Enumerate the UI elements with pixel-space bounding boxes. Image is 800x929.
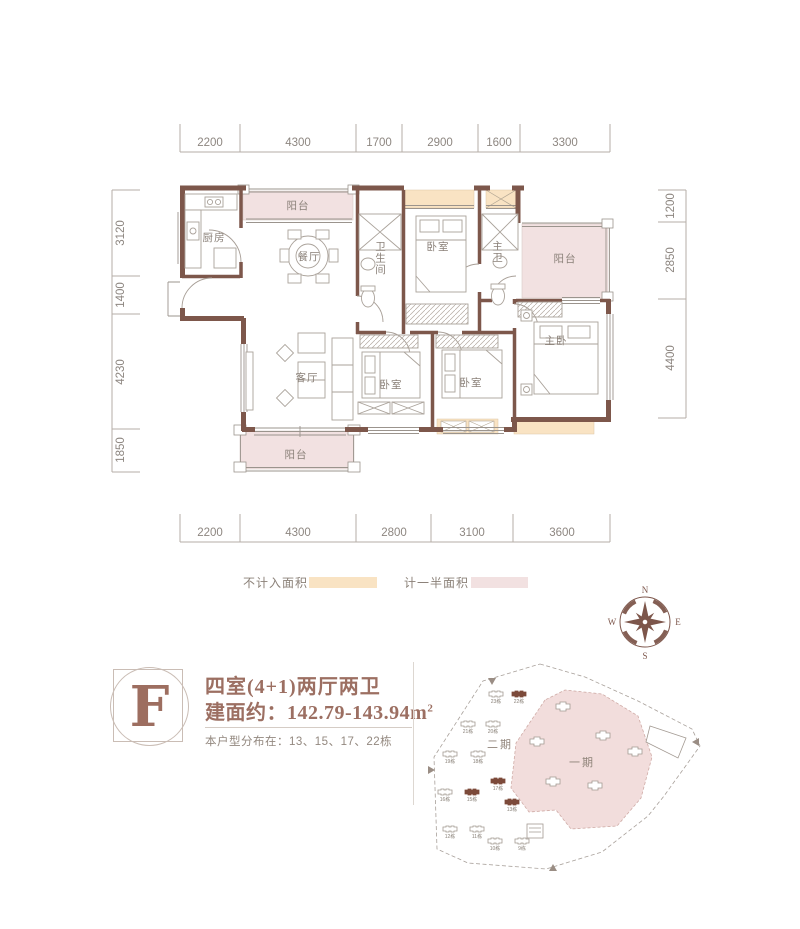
dim-right-3: 4400 bbox=[665, 345, 677, 371]
unit-type-badge: F bbox=[113, 669, 183, 742]
label-balcony-bottom: 阳台 bbox=[285, 448, 308, 461]
bed-right-bedroom bbox=[442, 350, 502, 398]
dim-top-2: 4300 bbox=[285, 137, 311, 149]
compass-n: N bbox=[642, 585, 649, 595]
dim-top-5: 1600 bbox=[486, 137, 512, 149]
wardrobe bbox=[436, 335, 498, 348]
label-balcony-right: 阳台 bbox=[554, 252, 577, 265]
dim-top-3: 1700 bbox=[366, 137, 392, 149]
unit-area-text: 建面约：142.79-143.94m bbox=[205, 702, 427, 724]
badge-circle-frame: F bbox=[110, 667, 189, 746]
floorplan-drawing: 2200 4300 1700 2900 1600 3300 2200 4300 … bbox=[0, 0, 800, 929]
section-divider bbox=[413, 662, 414, 805]
legend-half-counted-label: 计一半面积 bbox=[404, 577, 469, 590]
building-16-label: 16栋 bbox=[440, 796, 451, 803]
bed-top-bedroom bbox=[416, 216, 466, 292]
building-10 bbox=[488, 838, 502, 844]
dim-top-6: 3300 bbox=[552, 137, 578, 149]
bed-master-bedroom bbox=[521, 310, 598, 395]
bath-sink bbox=[361, 258, 375, 270]
unit-distribution: 本户型分布在：13、15、17、22栋 bbox=[205, 733, 392, 749]
unit-area-superscript: 2 bbox=[427, 702, 433, 714]
bed-left-bedroom bbox=[362, 352, 420, 398]
legend-not-counted-label: 不计入面积 bbox=[243, 577, 308, 590]
building-18 bbox=[471, 751, 485, 757]
dim-bottom-2: 4300 bbox=[285, 527, 311, 539]
wardrobe bbox=[360, 335, 418, 348]
building-22-highlighted bbox=[512, 691, 526, 697]
building-15-highlighted bbox=[465, 789, 479, 795]
building-18-label: 18栋 bbox=[473, 758, 484, 765]
sofa bbox=[332, 338, 353, 420]
label-master-bath: 主卫 bbox=[491, 241, 503, 264]
building-23-label: 23栋 bbox=[491, 698, 502, 705]
unit-layout-title: 四室(4+1)两厅两卫 bbox=[205, 670, 381, 699]
building-9-label: 9栋 bbox=[518, 845, 526, 852]
unit-type-letter: F bbox=[130, 674, 170, 740]
legend-not-counted-swatch bbox=[309, 577, 377, 588]
building-9 bbox=[515, 838, 529, 844]
dim-right-1: 1200 bbox=[665, 193, 677, 219]
master-toilet bbox=[492, 287, 505, 305]
tv-cabinet bbox=[246, 352, 253, 410]
label-bedroom-left: 卧室 bbox=[380, 378, 403, 391]
label-bedroom-top: 卧室 bbox=[427, 240, 450, 253]
building-20-label: 20栋 bbox=[488, 728, 499, 735]
building-17-label: 17栋 bbox=[493, 785, 504, 792]
dim-left-2: 1400 bbox=[115, 282, 127, 308]
building-13-highlighted bbox=[505, 799, 519, 805]
building-20 bbox=[486, 721, 500, 727]
label-bathroom: 卫生间 bbox=[374, 241, 386, 276]
site-plan: 23栋 22栋 21栋 20栋 19栋 18栋 17栋 16栋 15栋 13栋 … bbox=[428, 664, 700, 871]
label-balcony-top: 阳台 bbox=[287, 199, 310, 212]
dim-right-2: 2850 bbox=[665, 247, 677, 273]
building-19 bbox=[443, 751, 457, 757]
label-kitchen: 厨房 bbox=[203, 231, 226, 244]
label-bedroom-right: 卧室 bbox=[460, 376, 483, 389]
unit-info: 四室(4+1)两厅两卫 建面约：142.79-143.94m2 本户型分布在：1… bbox=[205, 667, 420, 757]
fridge bbox=[214, 248, 236, 268]
dim-top-1: 2200 bbox=[197, 137, 223, 149]
label-living: 客厅 bbox=[296, 371, 319, 384]
compass-e: E bbox=[675, 617, 681, 627]
dim-bottom-1: 2200 bbox=[197, 527, 223, 539]
building-22-label: 22栋 bbox=[514, 698, 525, 705]
compass-w: W bbox=[608, 617, 617, 627]
unit-area: 建面约：142.79-143.94m2 bbox=[205, 696, 433, 725]
building-17-highlighted bbox=[491, 778, 505, 784]
building-11 bbox=[470, 826, 484, 832]
phase1-label: 一期 bbox=[569, 756, 595, 769]
compass-rose: N E S W bbox=[608, 585, 682, 661]
building-12-label: 12栋 bbox=[445, 833, 456, 840]
compass-s: S bbox=[642, 651, 647, 661]
building-11-label: 11栋 bbox=[472, 833, 482, 840]
building-21 bbox=[461, 721, 475, 727]
phase2-label: 二期 bbox=[487, 738, 513, 751]
legend-half-counted-swatch bbox=[471, 577, 528, 588]
building-21-label: 21栋 bbox=[463, 728, 474, 735]
dim-bottom-5: 3600 bbox=[549, 527, 575, 539]
building-23 bbox=[489, 691, 503, 697]
dim-left-4: 1850 bbox=[115, 437, 127, 463]
building-13-label: 13栋 bbox=[507, 806, 518, 813]
label-master-bedroom: 主卧 bbox=[545, 334, 568, 347]
floorplan-brochure-page: { "floorplan": { "dims_top": ["2200", "4… bbox=[0, 0, 800, 929]
building-15-label: 15栋 bbox=[467, 796, 478, 803]
dim-bottom-3: 2800 bbox=[381, 527, 407, 539]
dim-top-4: 2900 bbox=[427, 137, 453, 149]
building-16 bbox=[438, 789, 452, 795]
wardrobe bbox=[406, 304, 468, 324]
unit-info-divider bbox=[205, 727, 412, 728]
dim-left-1: 3120 bbox=[115, 220, 127, 246]
building-12 bbox=[443, 826, 457, 832]
label-dining: 餐厅 bbox=[298, 250, 321, 263]
building-19-label: 19栋 bbox=[445, 758, 456, 765]
dim-left-3: 4230 bbox=[115, 359, 127, 385]
toilet bbox=[362, 289, 375, 307]
dim-bottom-4: 3100 bbox=[459, 527, 485, 539]
building-10-label: 10栋 bbox=[490, 845, 501, 852]
